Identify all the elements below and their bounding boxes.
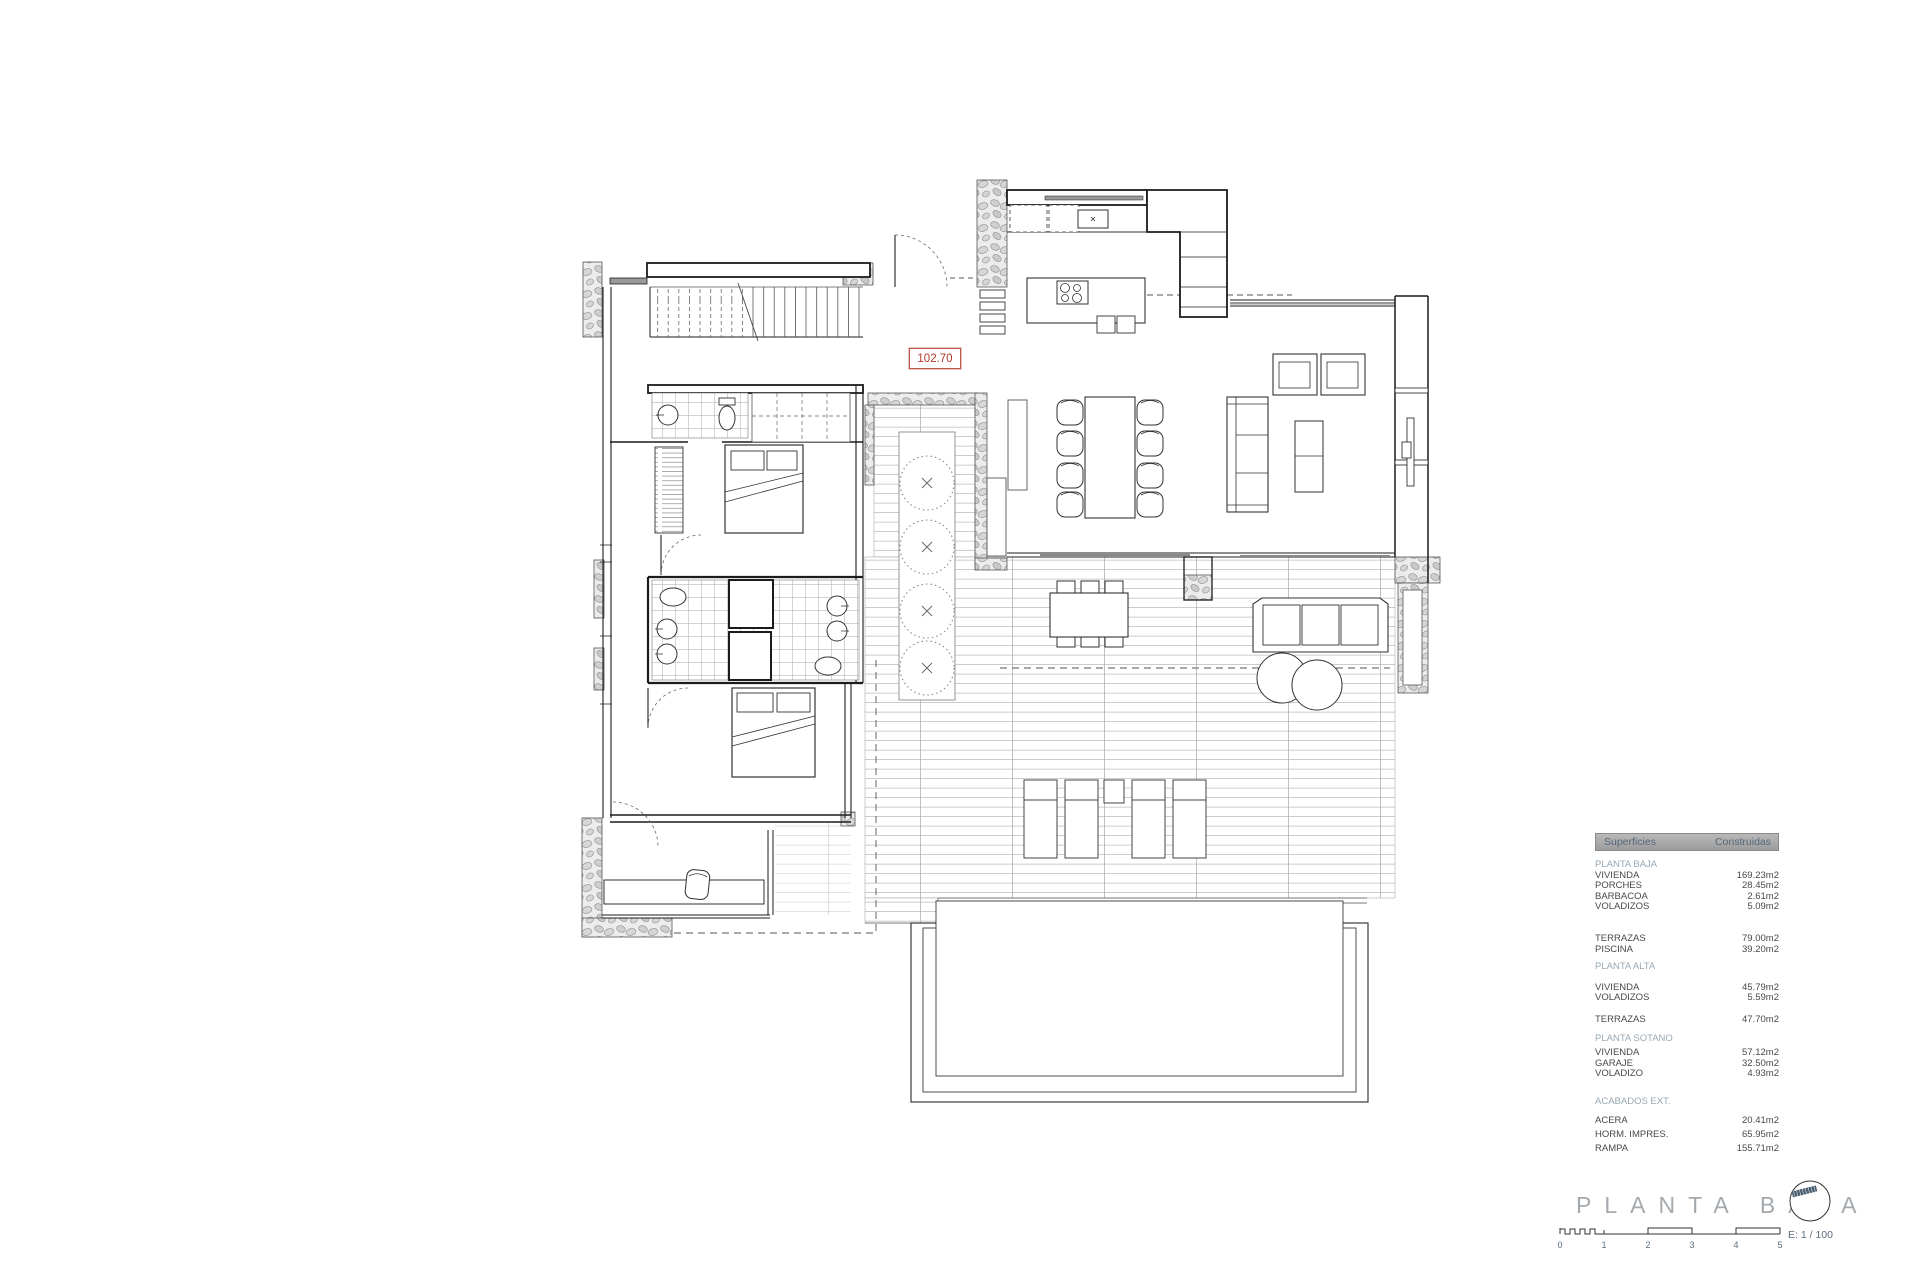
legend-row: VOLADIZOS5.09m2 [1595, 902, 1779, 913]
legend-header-col2: Construidas [1715, 836, 1771, 848]
legend-row-value: 155.71m2 [1737, 1142, 1779, 1156]
bathroom-middle [652, 580, 859, 680]
legend-row-label: VOLADIZOS [1595, 993, 1649, 1004]
tree-icon [900, 456, 954, 510]
legend-section: TERRAZAS79.00m2PISCINA39.20m2 [1595, 934, 1779, 955]
scale-bar: 012345 [1556, 1222, 1796, 1256]
legend-row-value: 4.93m2 [1747, 1069, 1779, 1080]
legend-row: PISCINA39.20m2 [1595, 945, 1779, 956]
scale-tick: 3 [1689, 1240, 1694, 1250]
legend-row: TERRAZAS79.00m2 [1595, 934, 1779, 945]
scale-tick: 4 [1733, 1240, 1738, 1250]
outdoor-dining [1050, 581, 1128, 647]
porch-floor [775, 822, 851, 915]
legend-row: TERRAZAS47.70m2 [1595, 1015, 1779, 1026]
legend-row: HORM. IMPRES.65.95m2 [1595, 1128, 1779, 1142]
legend-row: ACERA20.41m2 [1595, 1114, 1779, 1128]
legend-row-value: 20.41m2 [1742, 1114, 1779, 1128]
legend-section-heading: PLANTA BAJA [1595, 860, 1779, 871]
tree-icon [900, 520, 954, 574]
legend-header-col1: Superficies [1604, 836, 1656, 848]
scale-tick: 5 [1777, 1240, 1782, 1250]
legend-body: PLANTA BAJAVIVIENDA169.23m2PORCHES28.45m… [1595, 860, 1779, 1156]
toilet-icon [719, 406, 735, 430]
legend-row-value: 65.95m2 [1742, 1128, 1779, 1142]
legend-row-value: 39.20m2 [1742, 945, 1779, 956]
shower-cabin [729, 580, 773, 628]
sofa [1227, 397, 1268, 512]
toilet-icon [815, 657, 841, 675]
porch-armchair [684, 869, 710, 900]
legend-row-label: RAMPA [1595, 1142, 1628, 1156]
swimming-pool [911, 901, 1368, 1102]
shower-cabin [729, 632, 771, 680]
window-handle [1402, 442, 1411, 458]
tree-icon [900, 641, 954, 695]
scale-tick: 2 [1645, 1240, 1650, 1250]
legend-section: PLANTA SOTANOVIVIENDA57.12m2GARAJE32.50m… [1595, 1034, 1779, 1080]
tree-icon [900, 584, 954, 638]
legend-section: TERRAZAS47.70m2 [1595, 1015, 1779, 1026]
toilet-icon [660, 588, 686, 606]
window-band [1045, 196, 1143, 200]
side-table [1104, 780, 1124, 803]
wardrobe-top [752, 393, 850, 442]
pillow [777, 693, 810, 712]
legend-section: PLANTA ALTAVIVIENDA45.79m2VOLADIZOS5.59m… [1595, 962, 1779, 1004]
legend-row-label: ACERA [1595, 1114, 1628, 1128]
dining-area [1057, 397, 1163, 518]
pillow [767, 451, 797, 470]
planter-pocket [1008, 400, 1027, 490]
bedroom-2 [732, 688, 815, 777]
legend-header: Superficies Construidas [1595, 833, 1779, 851]
legend-row-label: TERRAZAS [1595, 1015, 1646, 1026]
pillow [731, 451, 764, 470]
coffee-table [1295, 421, 1323, 492]
living-area [1227, 354, 1365, 512]
porch-bench [604, 880, 764, 904]
legend-row: RAMPA155.71m2 [1595, 1142, 1779, 1156]
scale-tick: 1 [1601, 1240, 1606, 1250]
legend-section-heading: PLANTA SOTANO [1595, 1034, 1779, 1045]
legend-section: ACABADOS EXT.ACERA20.41m2HORM. IMPRES.65… [1595, 1097, 1779, 1156]
legend-row-label: VOLADIZOS [1595, 902, 1649, 913]
bedroom-1 [655, 445, 803, 533]
legend-section: PLANTA BAJAVIVIENDA169.23m2PORCHES28.45m… [1595, 860, 1779, 913]
legend-row-value: 47.70m2 [1742, 1015, 1779, 1026]
outdoor-table [1050, 593, 1128, 637]
pillow [737, 693, 773, 712]
dining-table [1085, 397, 1135, 518]
outdoor-planter-box [1403, 590, 1422, 685]
drawing-sheet: 102.70 Superficies Construidas PLANTA BA… [0, 0, 1920, 1280]
legend-row: VOLADIZO4.93m2 [1595, 1069, 1779, 1080]
staircase [650, 283, 863, 341]
legend-section-heading: PLANTA ALTA [1595, 962, 1779, 973]
legend-row-label: PISCINA [1595, 945, 1633, 956]
window-band [1230, 302, 1395, 305]
legend-row-value: 5.59m2 [1747, 993, 1779, 1004]
legend-row: VOLADIZOS5.59m2 [1595, 993, 1779, 1004]
legend-row-label: TERRAZAS [1595, 934, 1646, 945]
surface-legend: Superficies Construidas PLANTA BAJAVIVIE… [1595, 833, 1779, 1156]
stool [1117, 316, 1135, 333]
legend-row-label: VOLADIZO [1595, 1069, 1643, 1080]
stool [1097, 316, 1115, 333]
logo-stamp [1787, 1178, 1835, 1226]
scale-tick: 0 [1557, 1240, 1562, 1250]
courtyard-planter [899, 432, 955, 700]
legend-row-value: 5.09m2 [1747, 902, 1779, 913]
level-label: 102.70 [909, 348, 961, 369]
bathroom-top [652, 393, 748, 438]
window-band [610, 278, 647, 284]
wardrobe-hangers [655, 447, 683, 533]
planter-pocket [987, 478, 1006, 556]
pouf [1292, 660, 1342, 710]
legend-row-label: HORM. IMPRES. [1595, 1128, 1668, 1142]
kitchen-counter [1147, 190, 1227, 317]
legend-row-value: 79.00m2 [1742, 934, 1779, 945]
legend-section-heading: ACABADOS EXT. [1595, 1097, 1779, 1108]
